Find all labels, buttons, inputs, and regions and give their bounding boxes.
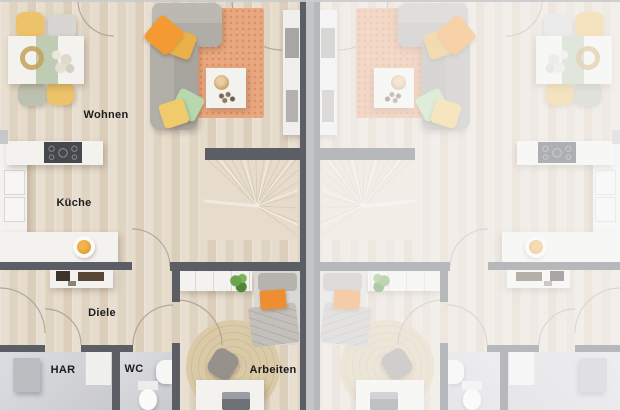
kitchen-appliance (4, 197, 25, 222)
door-arc-terrace (78, 0, 114, 36)
daybed-gray-blanket (248, 302, 301, 348)
office-chair (206, 346, 240, 384)
tv-sideboard (283, 10, 301, 135)
fruits (77, 240, 91, 254)
utility-top-wall (0, 345, 45, 352)
floorplan: Wohnen Küche Diele HAR WC Arbeiten (0, 0, 620, 410)
wc-office-divider-wall-upper (172, 262, 180, 302)
exterior-wall-stub (0, 130, 8, 144)
office-chair-seat (205, 345, 242, 383)
room-label-living: Wohnen (84, 109, 129, 121)
sideboard-decor (78, 272, 104, 281)
tv-item (286, 90, 298, 122)
door-arc-utility (45, 309, 81, 345)
cooktop (44, 142, 82, 163)
sideboard-decor (68, 281, 76, 286)
sideboard-decor (56, 271, 70, 281)
party-wall-gap (306, 0, 314, 410)
room-label-wc: WC (125, 363, 144, 375)
table-flower-decor (48, 46, 76, 76)
unit-right: Wohnen Küche Diele HAR WC Arbeiten (310, 0, 620, 410)
unit-left: Wohnen Küche Diele HAR WC Arbeiten (0, 0, 310, 410)
table-wreath-decor (20, 46, 44, 70)
washing-machine (13, 358, 40, 392)
twig-decor (216, 90, 238, 105)
wc-office-divider-wall-lower (172, 343, 180, 410)
kitchen-counter-bottom (0, 232, 118, 262)
door-arc-entrance (0, 288, 45, 333)
coffee-table (206, 68, 246, 108)
utility-cabinet (85, 350, 111, 385)
room-label-hallway: Diele (88, 307, 116, 319)
plant (228, 270, 250, 294)
kitchen-appliance (4, 170, 25, 195)
dining-chair (18, 82, 46, 106)
dining-table (8, 36, 84, 84)
dining-chair (16, 12, 44, 38)
desk (196, 380, 264, 410)
fruit-bowl (73, 236, 95, 258)
door-arc-wc (133, 305, 173, 345)
door-arc-hallway (132, 229, 170, 267)
wc-top-wall (81, 345, 133, 352)
dining-chair (47, 82, 74, 105)
laptop (222, 392, 250, 410)
room-label-kitchen: Küche (56, 197, 91, 209)
top-edge-trim (0, 0, 620, 2)
wc-sink (156, 360, 172, 384)
door-arc-office (177, 300, 222, 345)
cup-decor (214, 75, 229, 90)
daybed-pillow (258, 273, 297, 291)
staircase (205, 160, 298, 240)
utility-wc-divider-wall (112, 345, 120, 410)
toilet-bowl (139, 389, 157, 410)
office-top-wall (170, 262, 300, 271)
fade-overlay (310, 0, 620, 410)
stair-wall (205, 148, 300, 160)
daybed-orange-blanket (259, 289, 286, 310)
room-label-office: Arbeiten (249, 364, 296, 376)
kitchen-hallway-wall (0, 262, 132, 270)
room-label-utility: HAR (51, 364, 76, 376)
hallway-sideboard (50, 268, 113, 288)
tv-item (285, 28, 299, 58)
